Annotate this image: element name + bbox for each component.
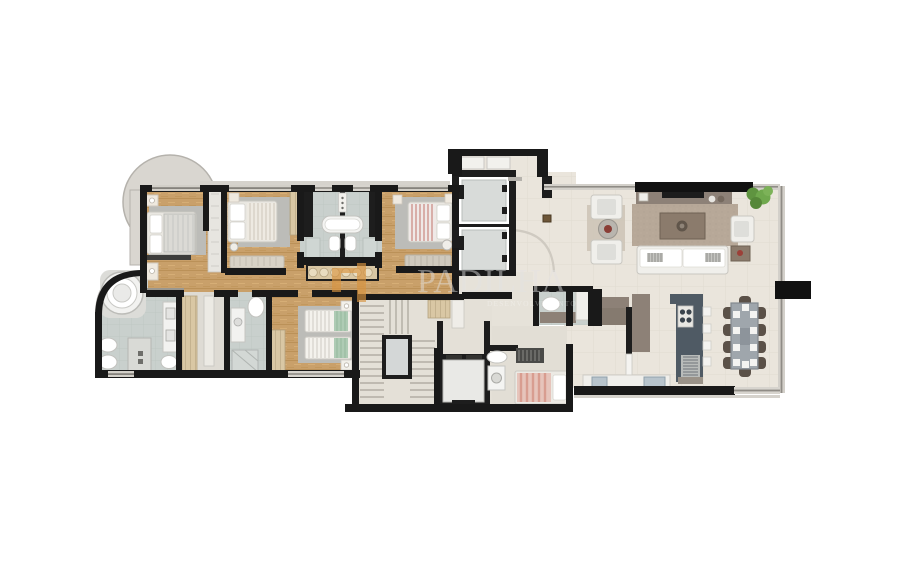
svg-text:PADILHA: PADILHA <box>417 263 567 300</box>
svg-text:DESENVOLVIMENTO: DESENVOLVIMENTO <box>487 299 577 308</box>
